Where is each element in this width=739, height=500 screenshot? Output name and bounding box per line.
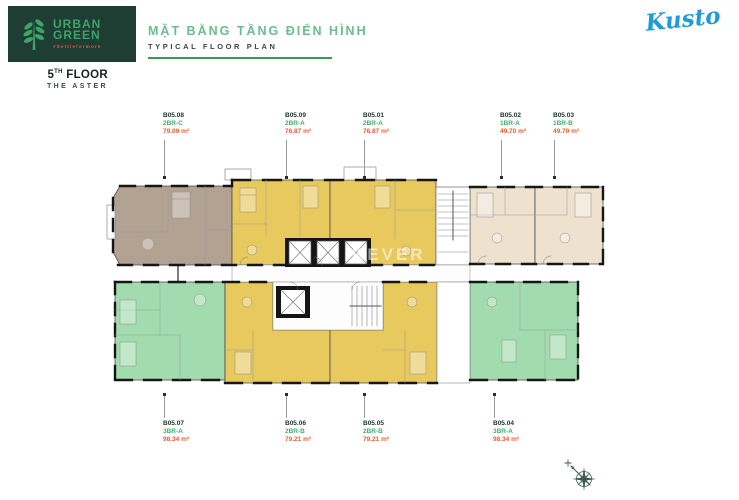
unit-label-B05.08: B05.082BR-C79.09 m² <box>163 112 223 136</box>
watermark-text: REVER <box>352 245 426 264</box>
unit-id: B05.04 <box>493 420 553 428</box>
unit-id: B05.07 <box>163 420 223 428</box>
unit-area: 79.21 m² <box>285 436 345 444</box>
unit-type: 1BR-B <box>553 120 613 128</box>
unit-type: 2BR-B <box>363 428 423 436</box>
leader-line-B05.06 <box>286 396 287 418</box>
leader-dot-B05.01 <box>363 176 366 179</box>
balcony <box>225 169 251 180</box>
unit-id: B05.05 <box>363 420 423 428</box>
unit-type: 2BR-A <box>363 120 423 128</box>
unit-id: B05.09 <box>285 112 345 120</box>
unit-region-B05.03 <box>535 187 603 264</box>
leader-line-B05.08 <box>164 140 165 176</box>
unit-type: 2BR-B <box>285 428 345 436</box>
leader-dot-B05.02 <box>500 176 503 179</box>
leader-dot-B05.03 <box>553 176 556 179</box>
unit-area: 49.70 m² <box>553 128 613 136</box>
unit-area: 76.87 m² <box>363 128 423 136</box>
unit-label-B05.02: B05.021BR-A49.70 m² <box>500 112 560 136</box>
compass-rose-icon <box>565 460 597 492</box>
unit-label-B05.03: B05.031BR-B49.70 m² <box>553 112 613 136</box>
unit-area: 79.09 m² <box>163 128 223 136</box>
unit-type: 1BR-A <box>500 120 560 128</box>
unit-label-B05.09: B05.092BR-A76.87 m² <box>285 112 345 136</box>
unit-area: 49.70 m² <box>500 128 560 136</box>
unit-area: 98.34 m² <box>493 436 553 444</box>
unit-id: B05.08 <box>163 112 223 120</box>
unit-id: B05.01 <box>363 112 423 120</box>
leader-line-B05.01 <box>364 140 365 176</box>
unit-label-B05.05: B05.052BR-B79.21 m² <box>363 420 423 444</box>
unit-area: 76.87 m² <box>285 128 345 136</box>
unit-label-B05.06: B05.062BR-B79.21 m² <box>285 420 345 444</box>
leader-dot-B05.04 <box>493 393 496 396</box>
unit-id: B05.02 <box>500 112 560 120</box>
leader-line-B05.03 <box>554 140 555 176</box>
service-elevator <box>276 286 310 318</box>
balcony <box>344 167 376 180</box>
unit-id: B05.06 <box>285 420 345 428</box>
unit-type: 3BR-A <box>493 428 553 436</box>
unit-region-B05.04 <box>470 282 578 380</box>
leader-line-B05.07 <box>164 396 165 418</box>
unit-area: 98.34 m² <box>163 436 223 444</box>
leader-dot-B05.08 <box>163 176 166 179</box>
unit-id: B05.03 <box>553 112 613 120</box>
unit-label-B05.04: B05.043BR-A98.34 m² <box>493 420 553 444</box>
leader-line-B05.05 <box>364 396 365 418</box>
unit-type: 2BR-A <box>285 120 345 128</box>
unit-label-B05.01: B05.012BR-A76.87 m² <box>363 112 423 136</box>
unit-type: 3BR-A <box>163 428 223 436</box>
leader-dot-B05.05 <box>363 393 366 396</box>
leader-dot-B05.09 <box>285 176 288 179</box>
unit-label-B05.07: B05.073BR-A98.34 m² <box>163 420 223 444</box>
unit-area: 79.21 m² <box>363 436 423 444</box>
leader-line-B05.04 <box>494 396 495 418</box>
leader-line-B05.09 <box>286 140 287 176</box>
leader-dot-B05.07 <box>163 393 166 396</box>
leader-dot-B05.06 <box>285 393 288 396</box>
leader-line-B05.02 <box>501 140 502 176</box>
unit-type: 2BR-C <box>163 120 223 128</box>
